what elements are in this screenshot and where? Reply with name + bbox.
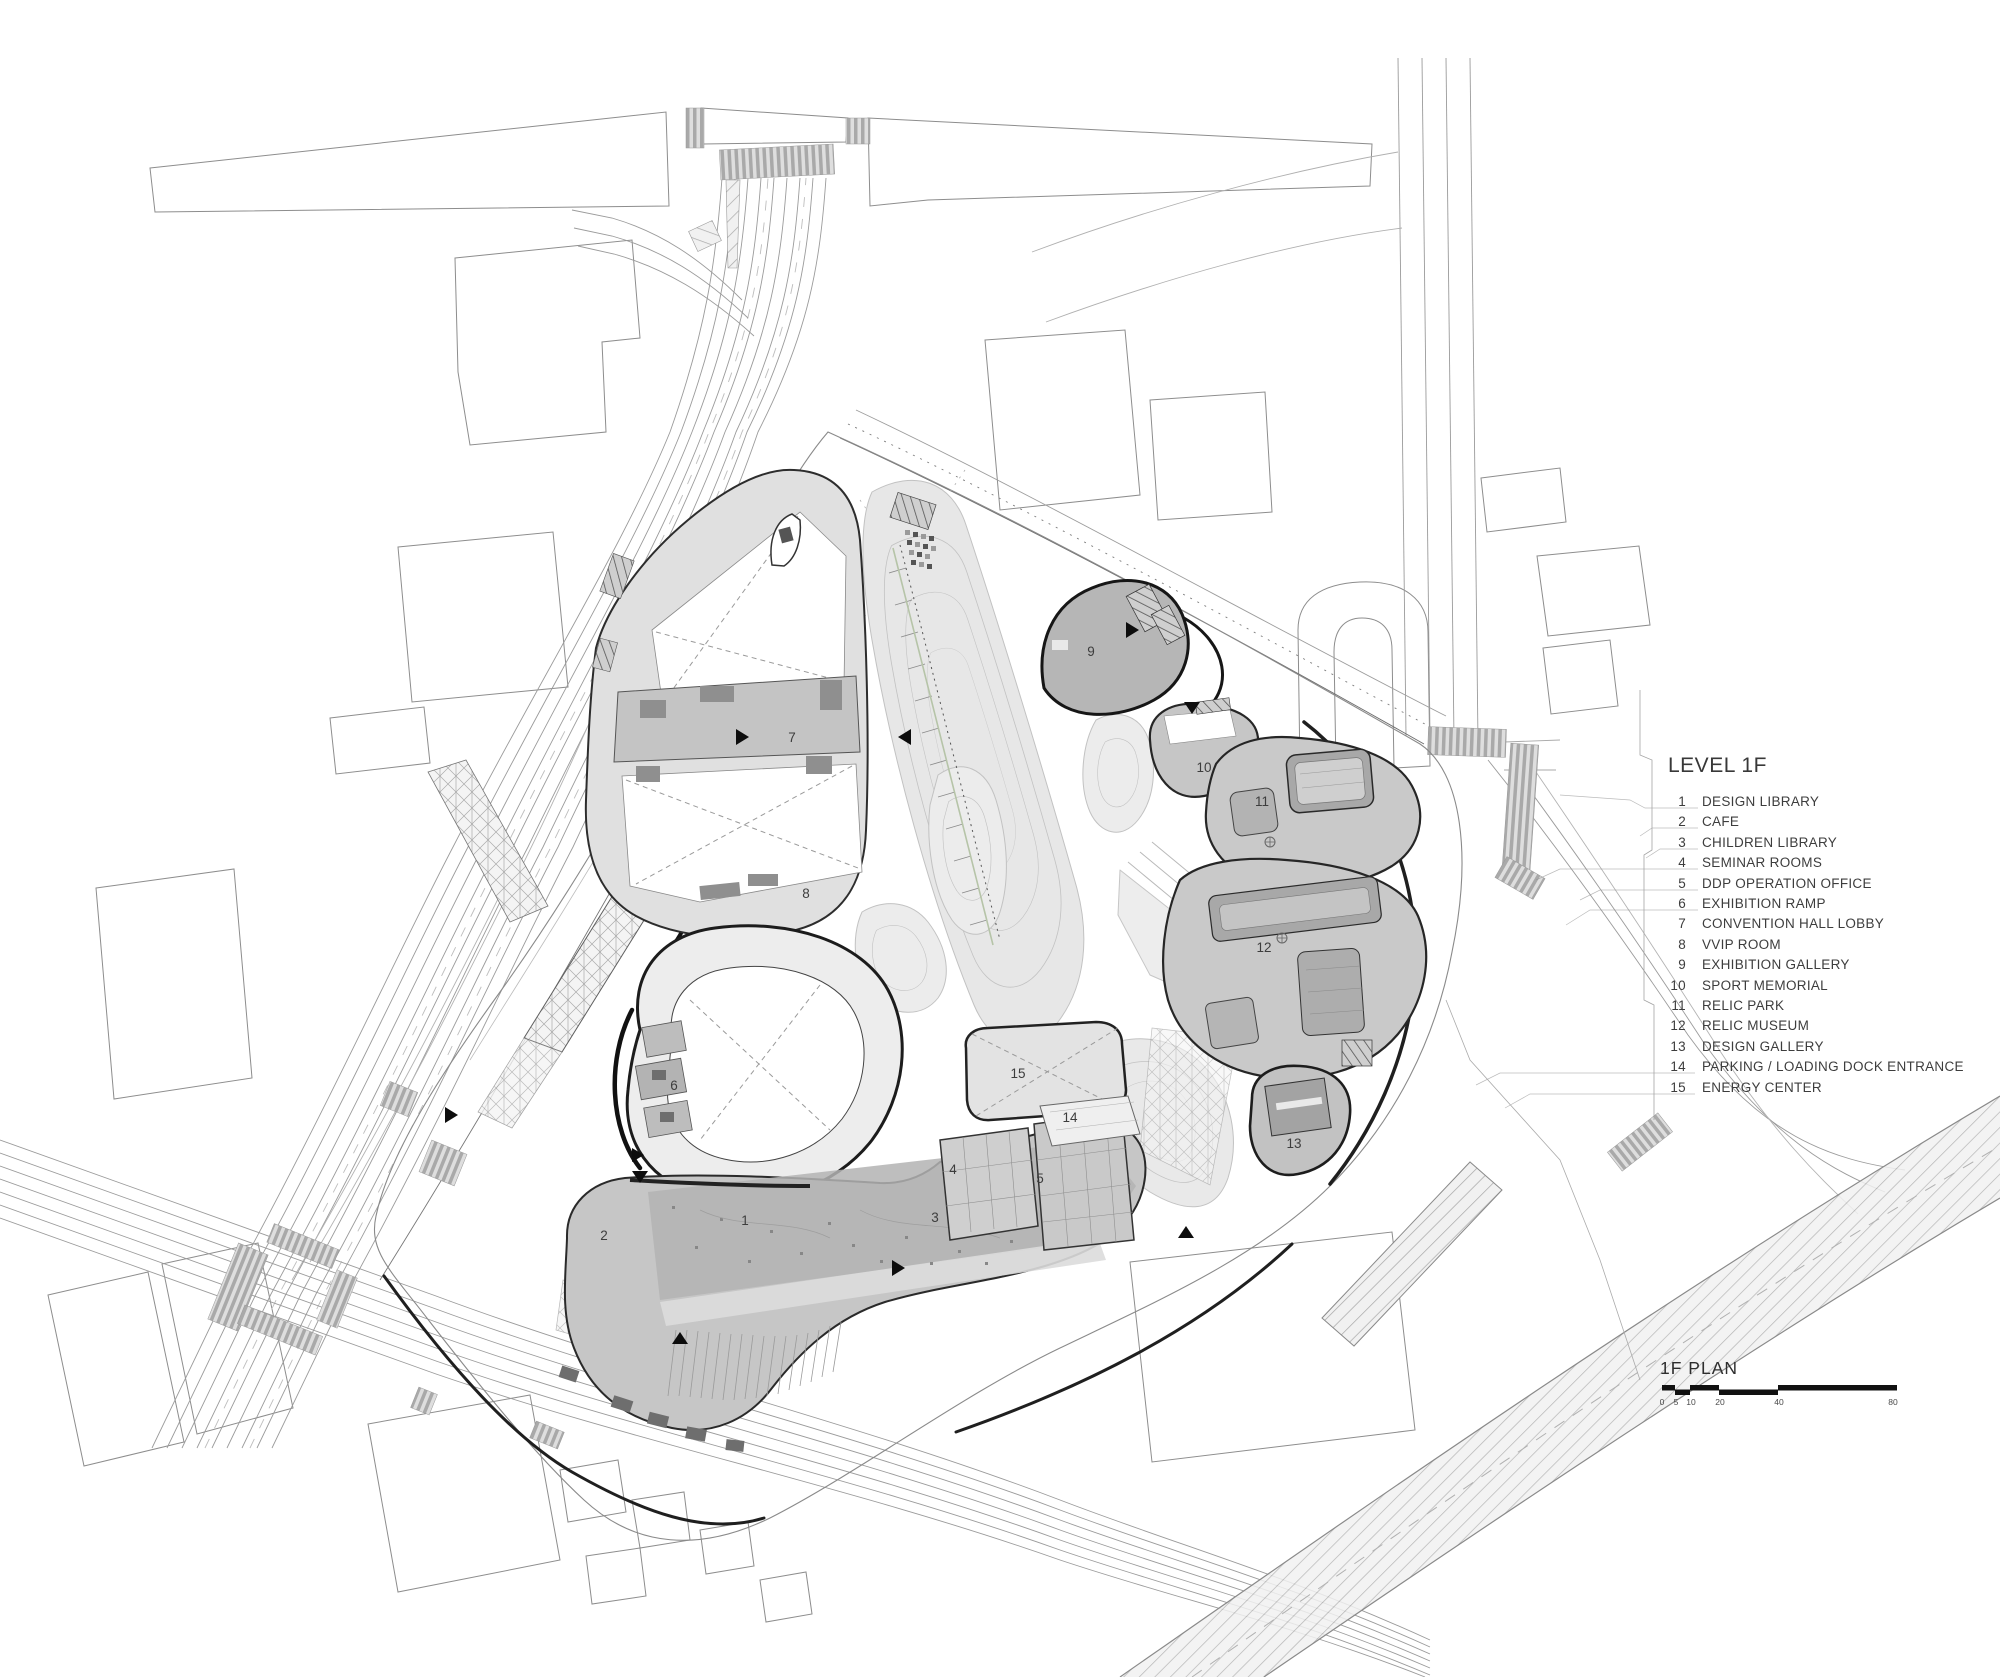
property-line [1640,690,1654,1120]
legend-item-label: SEMINAR ROOMS [1702,853,1822,873]
legend-item-number: 7 [1664,914,1686,934]
legend-item-relic-museum: 12 RELIC MUSEUM [1664,1016,1964,1036]
plan-label-15: 15 [1010,1066,1025,1081]
legend-item-design-gallery: 13 DESIGN GALLERY [1664,1037,1964,1057]
legend-item-vvip-room: 8 VVIP ROOM [1664,935,1964,955]
legend: LEVEL 1F 1 DESIGN LIBRARY 2 CAFE 3 CHILD… [1664,754,1964,1098]
legend-item-number: 14 [1664,1057,1686,1077]
legend-item-label: EXHIBITION GALLERY [1702,955,1850,975]
legend-item-label: CAFE [1702,812,1739,832]
plan-label-11: 11 [1255,794,1269,809]
legend-item-number: 9 [1664,955,1686,975]
legend-item-label: DESIGN GALLERY [1702,1037,1824,1057]
legend-item-exhibition-gallery: 9 EXHIBITION GALLERY [1664,955,1964,975]
plan-label-1: 1 [741,1213,749,1228]
scale-bar: 0 5 10 20 40 80 [1660,1385,1898,1407]
legend-item-number: 4 [1664,853,1686,873]
legend-item-convention-hall-lobby: 7 CONVENTION HALL LOBBY [1664,914,1964,934]
plan-label-6: 6 [670,1078,678,1093]
plan-label-14: 14 [1062,1110,1078,1125]
plan-label-5: 5 [1036,1171,1044,1186]
legend-item-label: EXHIBITION RAMP [1702,894,1826,914]
plan-label-13: 13 [1286,1136,1301,1151]
legend-item-number: 11 [1664,996,1686,1016]
legend-item-number: 5 [1664,874,1686,894]
legend-item-seminar-rooms: 4 SEMINAR ROOMS [1664,853,1964,873]
building-art-hall [615,926,902,1200]
legend-item-label: SPORT MEMORIAL [1702,976,1828,996]
plan-label-7: 7 [788,730,796,745]
legend-item-label: PARKING / LOADING DOCK ENTRANCE [1702,1057,1964,1077]
legend-item-exhibition-ramp: 6 EXHIBITION RAMP [1664,894,1964,914]
plan-label-4: 4 [949,1162,957,1177]
legend-item-number: 3 [1664,833,1686,853]
legend-item-number: 2 [1664,812,1686,832]
scale-tick-0: 0 [1660,1397,1665,1407]
legend-item-parking-loading-dock: 14 PARKING / LOADING DOCK ENTRANCE [1664,1057,1964,1077]
scale-tick-5: 5 [1674,1397,1679,1407]
legend-item-number: 13 [1664,1037,1686,1057]
scale-tick-80: 80 [1888,1397,1898,1407]
legend-item-label: VVIP ROOM [1702,935,1781,955]
legend-item-number: 15 [1664,1078,1686,1098]
legend-item-label: CONVENTION HALL LOBBY [1702,914,1884,934]
building-exhibition-gallery [1042,580,1223,716]
scale-tick-10: 10 [1686,1397,1696,1407]
legend-item-number: 10 [1664,976,1686,996]
legend-item-energy-center: 15 ENERGY CENTER [1664,1078,1964,1098]
plan-title: 1F PLAN [1660,1358,1738,1379]
legend-heading: LEVEL 1F [1668,754,1964,778]
plan-label-10: 10 [1196,760,1211,775]
plan-label-9: 9 [1087,644,1095,659]
legend-item-label: DDP OPERATION OFFICE [1702,874,1872,894]
plan-label-3: 3 [931,1210,939,1225]
floor-plan-sheet: 1 2 3 4 5 6 7 8 9 10 11 12 13 14 15 0 5 … [0,0,2000,1677]
scale-tick-40: 40 [1774,1397,1784,1407]
legend-item-label: DESIGN LIBRARY [1702,792,1819,812]
legend-item-children-library: 3 CHILDREN LIBRARY [1664,833,1964,853]
plan-label-2: 2 [600,1228,608,1243]
legend-item-sport-memorial: 10 SPORT MEMORIAL [1664,976,1964,996]
legend-item-number: 8 [1664,935,1686,955]
legend-item-relic-park: 11 RELIC PARK [1664,996,1964,1016]
legend-item-label: RELIC PARK [1702,996,1784,1016]
legend-item-number: 12 [1664,1016,1686,1036]
plan-label-8: 8 [802,886,810,901]
legend-item-number: 1 [1664,792,1686,812]
legend-item-operation-office: 5 DDP OPERATION OFFICE [1664,874,1964,894]
plan-label-12: 12 [1256,940,1271,955]
legend-item-cafe: 2 CAFE [1664,812,1964,832]
building-seminar-rooms [940,1128,1038,1240]
legend-item-number: 6 [1664,894,1686,914]
legend-item-label: ENERGY CENTER [1702,1078,1822,1098]
legend-item-design-library: 1 DESIGN LIBRARY [1664,792,1964,812]
scale-tick-20: 20 [1715,1397,1725,1407]
legend-item-label: RELIC MUSEUM [1702,1016,1809,1036]
legend-item-label: CHILDREN LIBRARY [1702,833,1837,853]
